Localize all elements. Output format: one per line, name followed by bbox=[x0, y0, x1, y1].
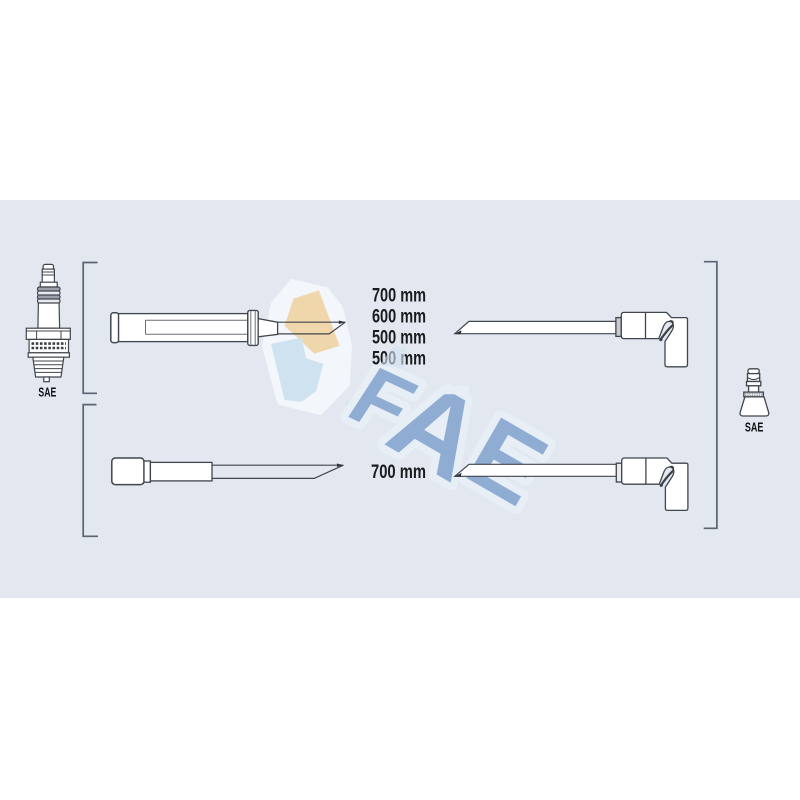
svg-text:SAE: SAE bbox=[38, 385, 56, 400]
svg-text:SAE: SAE bbox=[745, 419, 764, 434]
svg-text:700 mm: 700 mm bbox=[372, 285, 426, 306]
svg-text:500 mm: 500 mm bbox=[372, 328, 426, 349]
svg-text:700 mm: 700 mm bbox=[371, 462, 426, 483]
svg-text:600 mm: 600 mm bbox=[372, 306, 426, 327]
